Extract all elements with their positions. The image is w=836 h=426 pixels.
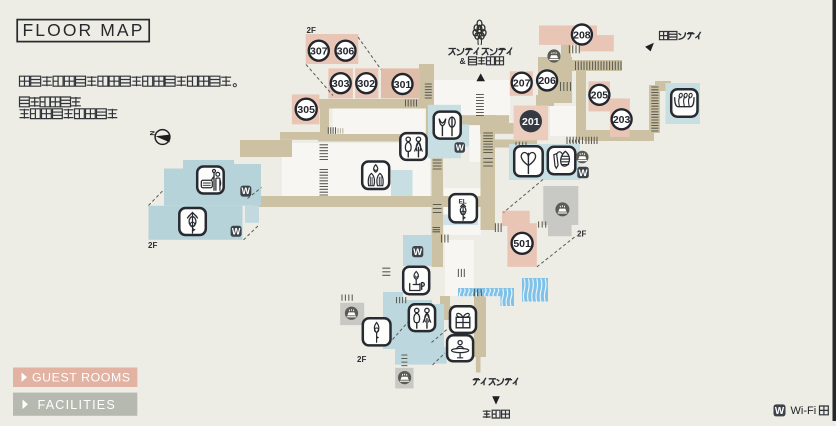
svg-text:201: 201 (522, 116, 540, 128)
svg-text:2F: 2F (577, 230, 586, 239)
svg-text:Wi-Fi: Wi-Fi (791, 405, 817, 417)
svg-text:FLOOR MAP: FLOOR MAP (23, 20, 145, 40)
svg-text:2F: 2F (148, 241, 157, 250)
svg-text:303: 303 (332, 78, 350, 90)
svg-text:GUEST ROOMS: GUEST ROOMS (32, 371, 131, 385)
svg-text:N: N (150, 131, 157, 136)
svg-text:W: W (456, 142, 465, 152)
svg-text:FACILITIES: FACILITIES (38, 398, 117, 412)
svg-text:306: 306 (337, 46, 355, 58)
svg-text:307: 307 (310, 46, 328, 58)
svg-text:2F: 2F (357, 355, 366, 364)
svg-text:305: 305 (297, 104, 315, 116)
svg-text:W: W (579, 167, 588, 178)
svg-text:302: 302 (358, 78, 376, 90)
svg-text:208: 208 (573, 29, 591, 41)
svg-text:W: W (232, 226, 241, 236)
svg-text:207: 207 (513, 78, 531, 90)
svg-text:206: 206 (538, 75, 556, 87)
svg-text:501: 501 (513, 238, 531, 250)
svg-text:W: W (413, 247, 422, 257)
svg-text:2F: 2F (307, 26, 316, 35)
svg-text:301: 301 (394, 79, 412, 91)
svg-text:W: W (775, 406, 785, 417)
svg-text:&: & (460, 56, 466, 66)
svg-text:203: 203 (613, 114, 631, 126)
svg-text:W: W (242, 186, 251, 196)
svg-text:205: 205 (591, 90, 609, 102)
